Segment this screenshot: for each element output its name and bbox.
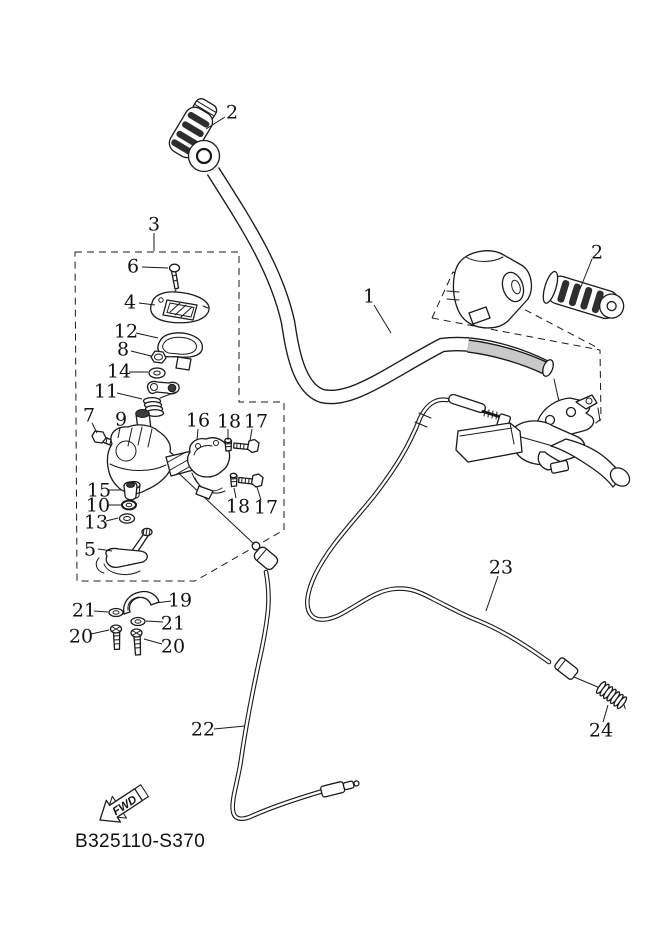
diagram-code: B325110-S370 [75, 831, 205, 852]
callout-20-right: 20 [161, 636, 185, 658]
washer-14 [149, 368, 165, 378]
callout-2-left: 2 [226, 102, 238, 124]
callout-9: 9 [115, 409, 127, 431]
switch-housing-ghost [447, 251, 531, 328]
washer-21-right [131, 618, 145, 626]
callout-17-lower: 17 [254, 497, 278, 519]
grip-left [166, 95, 222, 172]
steering-handle-parts-diagram: FWD B325110-S370 12234567891011121314151… [0, 0, 661, 935]
throttle-cable-end-fitting [320, 777, 360, 797]
callout-17-upper: 17 [244, 411, 268, 433]
callout-12: 12 [114, 321, 138, 343]
washer-21-left [109, 609, 123, 617]
leader-1 [374, 305, 391, 333]
screw-20-right [131, 629, 142, 655]
callout-4: 4 [124, 292, 136, 314]
handlebar-end-clamp [468, 346, 545, 368]
throttle-cable [233, 542, 361, 819]
throttle-arm [148, 381, 180, 393]
callout-21-right: 21 [161, 613, 185, 635]
leader-22 [214, 726, 245, 729]
screw-18-upper [225, 438, 232, 451]
callout-11: 11 [94, 381, 118, 403]
parts-diagram-page: FWD B325110-S370 12234567891011121314151… [0, 0, 661, 935]
brake-lever-assembly [448, 393, 634, 490]
bolt-17-lower [239, 474, 263, 487]
leader-21-left [94, 611, 108, 612]
callout-5: 5 [84, 539, 96, 561]
cap-15 [124, 482, 137, 500]
leader-20-left [91, 630, 109, 634]
screw-20-left [111, 625, 122, 650]
callout-18-upper: 18 [217, 411, 241, 433]
callout-16: 16 [186, 410, 210, 432]
leader-11 [117, 393, 142, 399]
callout-19: 19 [168, 590, 192, 612]
callout-6: 6 [127, 256, 139, 278]
callout-21-left: 21 [72, 600, 96, 622]
gasket-12 [158, 333, 202, 370]
callout-15: 15 [87, 480, 111, 502]
washer-10 [122, 501, 136, 510]
leader-6 [142, 267, 168, 268]
nut-8 [151, 351, 166, 363]
clamp-19 [124, 592, 159, 614]
callout-13: 13 [84, 512, 108, 534]
callout-22: 22 [191, 719, 215, 741]
brake-cable-spring [595, 681, 631, 712]
screw-18-lower [230, 473, 237, 486]
leader-8 [131, 351, 151, 356]
housing-body [107, 425, 175, 498]
leader-12 [136, 333, 158, 338]
callout-1: 1 [363, 286, 375, 308]
callout-2-right: 2 [591, 242, 603, 264]
callout-7: 7 [83, 405, 95, 427]
bolt-17-upper [234, 440, 259, 453]
leader-23 [486, 576, 498, 611]
leader-20-right [144, 639, 162, 644]
callout-24: 24 [589, 720, 613, 742]
callout-3: 3 [148, 214, 160, 236]
callout-14: 14 [107, 361, 131, 383]
callout-20-left: 20 [69, 626, 93, 648]
fwd-arrow: FWD [100, 785, 148, 822]
cover-4 [151, 292, 209, 323]
callout-23: 23 [489, 557, 513, 579]
callout-18-lower: 18 [226, 496, 250, 518]
housing-16 [188, 438, 230, 499]
brake-cable-ferrule [554, 657, 579, 681]
washer-13 [120, 514, 135, 523]
lever-5 [96, 528, 152, 574]
